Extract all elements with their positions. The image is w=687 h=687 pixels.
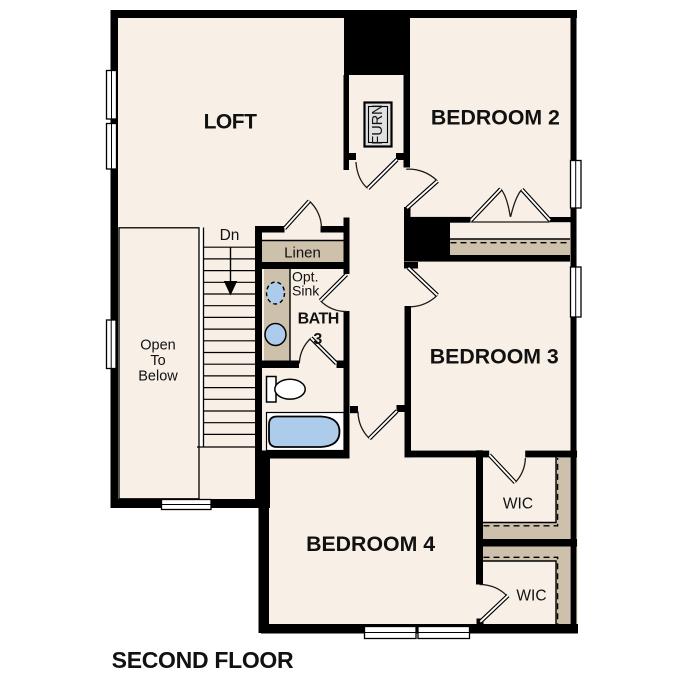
svg-text:Below: Below <box>138 369 178 385</box>
svg-text:BATH: BATH <box>298 311 339 328</box>
svg-text:FURN: FURN <box>370 104 386 144</box>
svg-text:Sink: Sink <box>292 283 320 299</box>
svg-text:Open: Open <box>140 338 175 354</box>
svg-text:LOFT: LOFT <box>204 111 257 134</box>
svg-text:BEDROOM 3: BEDROOM 3 <box>430 344 559 368</box>
svg-text:BEDROOM 2: BEDROOM 2 <box>431 106 560 130</box>
svg-text:Linen: Linen <box>284 245 321 262</box>
svg-text:3: 3 <box>313 331 322 348</box>
svg-text:SECOND FLOOR: SECOND FLOOR <box>112 647 294 673</box>
svg-text:WIC: WIC <box>503 496 533 513</box>
svg-text:BEDROOM 4: BEDROOM 4 <box>306 532 435 556</box>
svg-text:Dn: Dn <box>220 227 240 244</box>
svg-text:WIC: WIC <box>516 587 546 604</box>
svg-text:To: To <box>150 353 165 369</box>
